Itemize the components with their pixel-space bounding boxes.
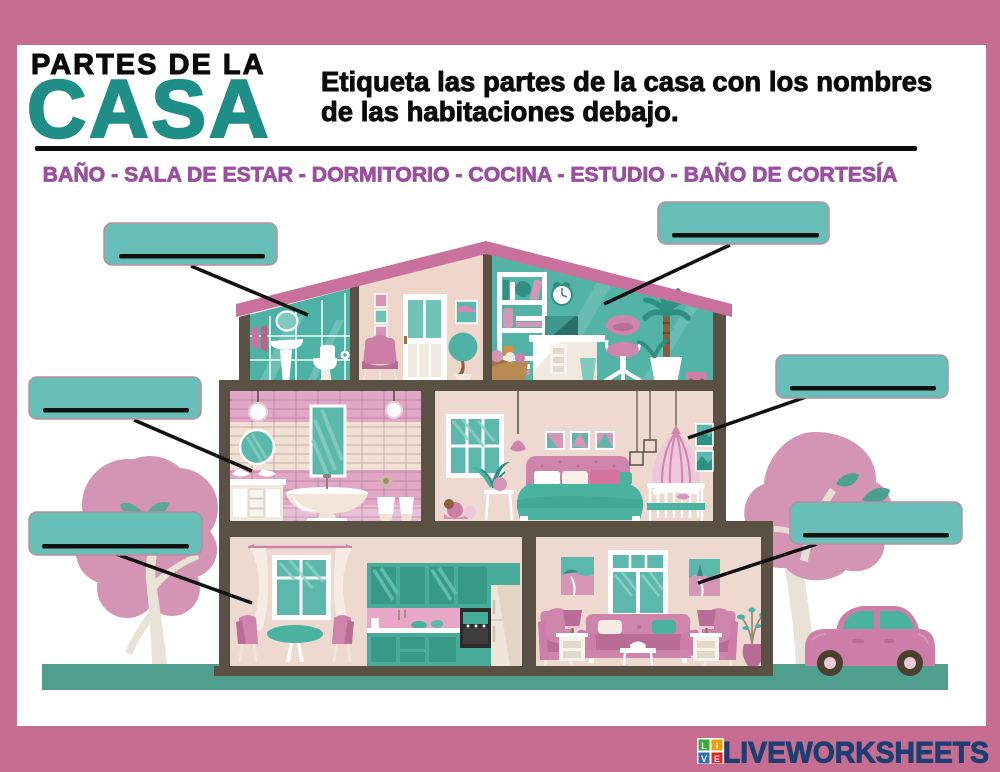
svg-text:de las habitaciones debajo.: de las habitaciones debajo.	[321, 96, 679, 127]
svg-text:LIVEWORKSHEETS: LIVEWORKSHEETS	[723, 737, 989, 770]
svg-text:L: L	[701, 741, 707, 751]
svg-text:I: I	[716, 741, 719, 751]
svg-text:BAÑO - SALA DE ESTAR - DORMITO: BAÑO - SALA DE ESTAR - DORMITORIO - COCI…	[43, 162, 898, 187]
svg-text:Etiqueta las partes de la casa: Etiqueta las partes de la casa con los n…	[321, 66, 932, 97]
svg-text:E: E	[714, 754, 720, 764]
svg-text:V: V	[701, 754, 707, 764]
svg-text:CASA: CASA	[27, 64, 271, 155]
